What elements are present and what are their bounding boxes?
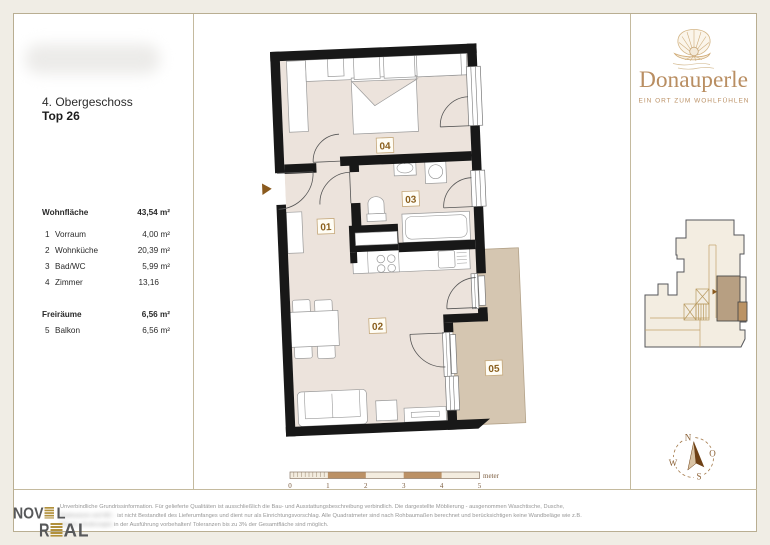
svg-text:4: 4 [440, 482, 444, 490]
svg-text:1: 1 [326, 482, 330, 490]
svg-text:L: L [78, 521, 89, 541]
svg-text:R: R [39, 521, 50, 541]
svg-text:02: 02 [372, 321, 384, 332]
svg-text:O: O [709, 449, 716, 459]
svg-text:3: 3 [402, 482, 406, 490]
svg-text:2: 2 [364, 482, 368, 490]
svg-text:S: S [696, 472, 701, 482]
svg-text:Donauperle: Donauperle [639, 67, 748, 92]
svg-text:03: 03 [405, 194, 417, 205]
svg-text:05: 05 [488, 364, 500, 375]
svg-text:W: W [669, 458, 678, 468]
svg-text:04: 04 [379, 141, 391, 152]
svg-text:N: N [685, 433, 692, 443]
svg-text:EIN ORT ZUM WOHLFÜHLEN: EIN ORT ZUM WOHLFÜHLEN [639, 97, 749, 105]
svg-text:0: 0 [288, 482, 292, 490]
svg-text:5: 5 [478, 482, 482, 490]
svg-text:01: 01 [320, 222, 332, 233]
svg-text:A: A [64, 521, 78, 541]
svg-text:meter: meter [483, 472, 500, 480]
